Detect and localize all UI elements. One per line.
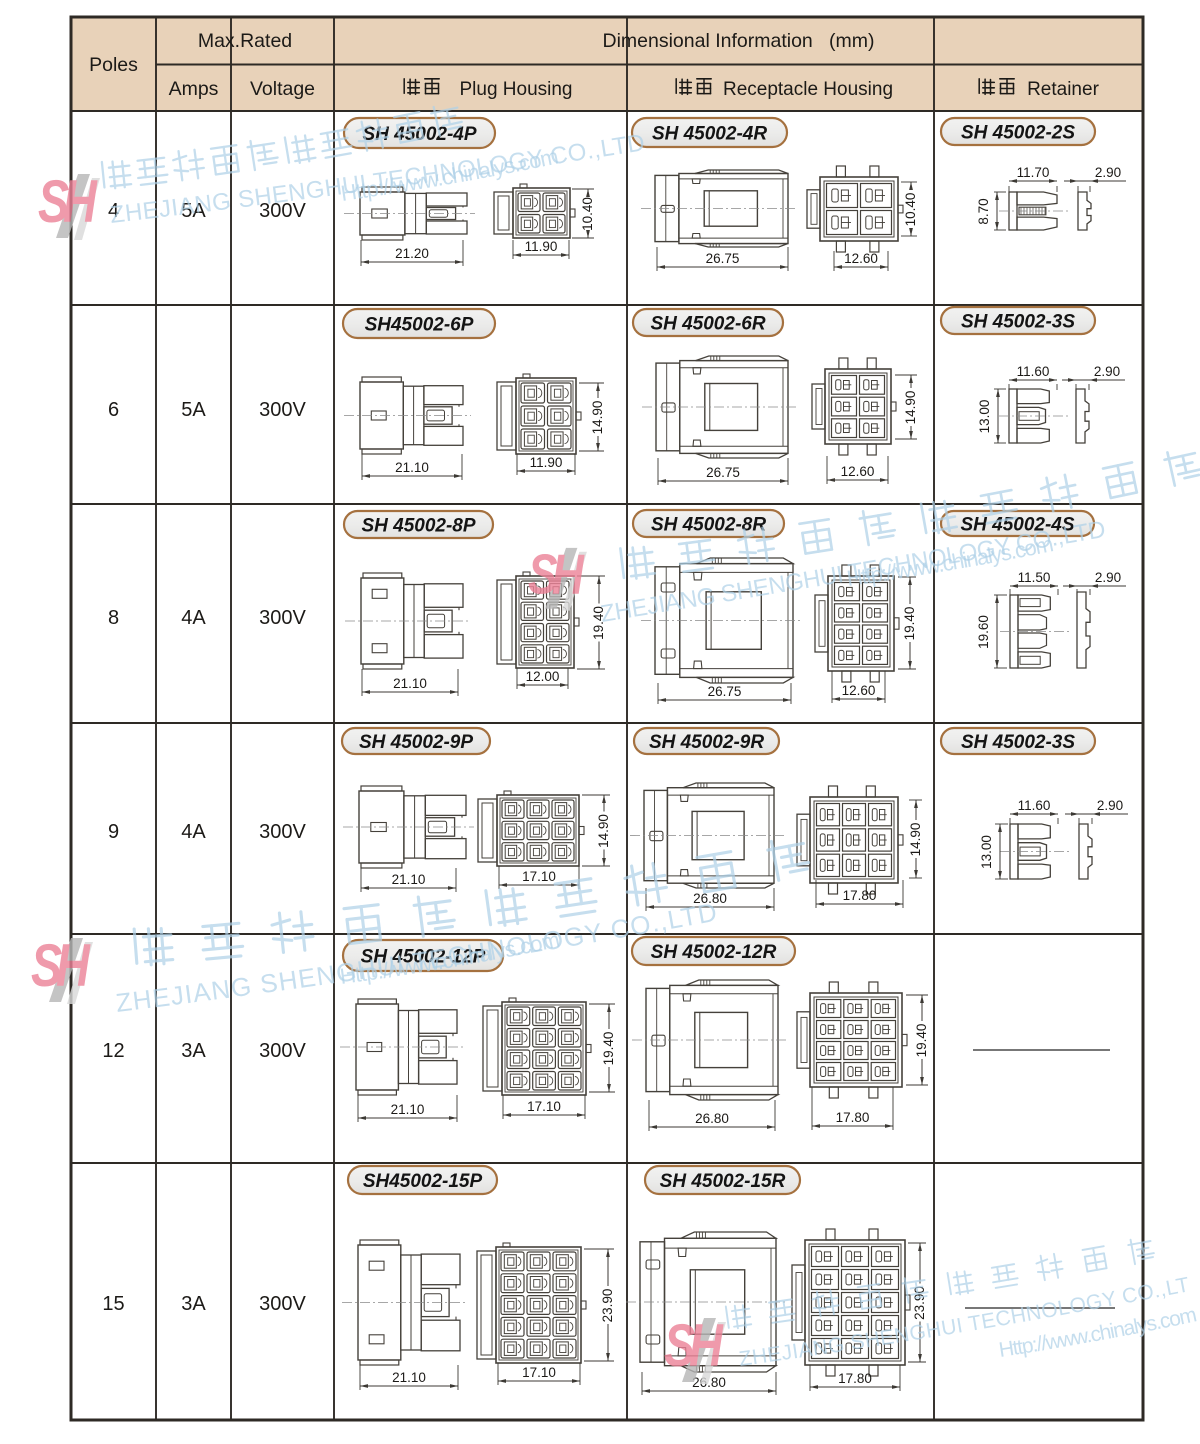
svg-text:SH 45002-15R: SH 45002-15R xyxy=(660,1171,786,1192)
svg-text:Plug Housing: Plug Housing xyxy=(459,79,572,100)
svg-text:14.90: 14.90 xyxy=(596,814,611,848)
svg-text:21.20: 21.20 xyxy=(395,246,429,261)
svg-text:SH 45002-2S: SH 45002-2S xyxy=(961,122,1075,143)
svg-text:12: 12 xyxy=(102,1040,124,1062)
svg-text:SH: SH xyxy=(38,168,98,235)
svg-text:2.90: 2.90 xyxy=(1095,570,1121,585)
svg-text:26.75: 26.75 xyxy=(708,684,742,699)
svg-text:SH 45002-3S: SH 45002-3S xyxy=(961,732,1075,753)
svg-text:13.00: 13.00 xyxy=(979,835,994,869)
svg-text:17.80: 17.80 xyxy=(836,1110,870,1125)
svg-text:19.40: 19.40 xyxy=(601,1032,616,1066)
svg-text:2.90: 2.90 xyxy=(1094,364,1120,379)
svg-text:300V: 300V xyxy=(259,821,306,843)
svg-text:300V: 300V xyxy=(259,399,306,421)
svg-text:SH: SH xyxy=(528,542,585,606)
svg-text:Receptacle Housing: Receptacle Housing xyxy=(723,79,893,100)
svg-text:17.10: 17.10 xyxy=(522,1365,556,1380)
svg-text:300V: 300V xyxy=(259,1293,306,1315)
svg-text:21.10: 21.10 xyxy=(392,1370,426,1385)
svg-text:17.80: 17.80 xyxy=(843,888,877,903)
svg-text:26.75: 26.75 xyxy=(706,251,740,266)
svg-text:4A: 4A xyxy=(181,821,206,843)
svg-text:300V: 300V xyxy=(259,607,306,629)
svg-text:14.90: 14.90 xyxy=(908,823,923,857)
svg-text:15: 15 xyxy=(102,1293,124,1315)
svg-text:SH: SH xyxy=(664,1312,724,1379)
svg-text:SH 45002-6R: SH 45002-6R xyxy=(650,313,765,334)
svg-text:SH 45002-8R: SH 45002-8R xyxy=(651,514,766,535)
svg-text:SH 45002-9R: SH 45002-9R xyxy=(649,732,764,753)
svg-text:21.10: 21.10 xyxy=(395,460,429,475)
svg-text:11.90: 11.90 xyxy=(530,455,563,470)
svg-text:4A: 4A xyxy=(181,607,206,629)
svg-text:300V: 300V xyxy=(259,1040,306,1062)
svg-text:17.80: 17.80 xyxy=(838,1371,872,1386)
svg-text:12.60: 12.60 xyxy=(844,251,878,266)
svg-text:SH 45002-12R: SH 45002-12R xyxy=(651,942,777,963)
svg-text:11.50: 11.50 xyxy=(1018,570,1051,585)
svg-text:11.70: 11.70 xyxy=(1017,165,1050,180)
svg-text:10.40: 10.40 xyxy=(903,193,918,227)
svg-text:9: 9 xyxy=(108,821,119,843)
svg-text:11.60: 11.60 xyxy=(1018,798,1051,813)
svg-text:8: 8 xyxy=(108,607,119,629)
svg-text:SH: SH xyxy=(31,932,91,999)
svg-text:2.90: 2.90 xyxy=(1095,165,1121,180)
svg-text:23.90: 23.90 xyxy=(600,1289,615,1323)
svg-text:17.10: 17.10 xyxy=(522,869,556,884)
svg-text:3A: 3A xyxy=(181,1293,206,1315)
svg-text:26.75: 26.75 xyxy=(706,465,740,480)
svg-text:SH 45002-9P: SH 45002-9P xyxy=(359,732,473,753)
svg-text:Poles: Poles xyxy=(89,54,138,76)
svg-text:Retainer: Retainer xyxy=(1027,79,1099,100)
svg-text:13.00: 13.00 xyxy=(977,400,992,434)
svg-text:21.10: 21.10 xyxy=(393,676,427,691)
svg-text:SH45002-6P: SH45002-6P xyxy=(365,314,474,335)
svg-text:19.60: 19.60 xyxy=(976,615,991,649)
svg-text:11.60: 11.60 xyxy=(1017,364,1050,379)
svg-text:Dimensional Information (mm): Dimensional Information (mm) xyxy=(603,30,875,52)
svg-text:14.90: 14.90 xyxy=(590,401,605,435)
svg-text:21.10: 21.10 xyxy=(391,1102,425,1117)
svg-text:Amps: Amps xyxy=(169,78,219,100)
svg-text:21.10: 21.10 xyxy=(392,872,426,887)
svg-text:SH 45002-4R: SH 45002-4R xyxy=(652,123,767,144)
svg-text:11.90: 11.90 xyxy=(525,239,558,254)
svg-text:12.60: 12.60 xyxy=(842,683,876,698)
svg-text:26.80: 26.80 xyxy=(695,1111,729,1126)
svg-text:Voltage: Voltage xyxy=(250,78,315,100)
svg-text:23.90: 23.90 xyxy=(912,1286,927,1320)
svg-text:SH 45002-3S: SH 45002-3S xyxy=(961,311,1075,332)
svg-text:12.60: 12.60 xyxy=(841,464,875,479)
svg-text:5A: 5A xyxy=(181,399,206,421)
svg-text:19.40: 19.40 xyxy=(902,607,917,641)
svg-text:Max.Rated: Max.Rated xyxy=(198,30,292,52)
svg-text:19.40: 19.40 xyxy=(914,1024,929,1058)
svg-text:2.90: 2.90 xyxy=(1097,798,1123,813)
svg-text:17.10: 17.10 xyxy=(527,1099,561,1114)
svg-text:14.90: 14.90 xyxy=(903,391,918,425)
svg-text:3A: 3A xyxy=(181,1040,206,1062)
svg-text:SH 45002-8P: SH 45002-8P xyxy=(361,515,475,536)
svg-text:8.70: 8.70 xyxy=(976,198,991,224)
svg-text:10.40: 10.40 xyxy=(580,197,595,231)
svg-text:12.00: 12.00 xyxy=(526,669,560,684)
svg-text:SH45002-15P: SH45002-15P xyxy=(363,1171,483,1192)
svg-text:6: 6 xyxy=(108,399,119,421)
